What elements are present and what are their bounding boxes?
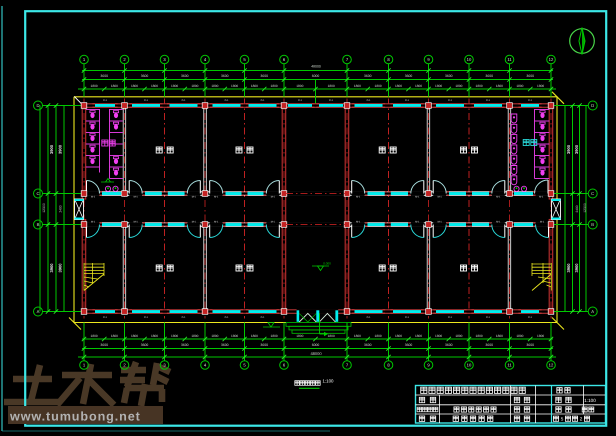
- svg-text:11: 11: [507, 363, 512, 368]
- svg-text:3900: 3900: [58, 263, 63, 273]
- svg-text:1800: 1800: [395, 334, 402, 338]
- svg-text:3900: 3900: [566, 263, 571, 273]
- svg-text:M-1: M-1: [271, 195, 276, 198]
- svg-text:1800: 1800: [354, 84, 361, 88]
- svg-text:1: 1: [83, 57, 86, 62]
- svg-text:3600: 3600: [445, 343, 453, 347]
- svg-text:C: C: [36, 191, 39, 196]
- svg-text:1800: 1800: [395, 84, 402, 88]
- svg-text:11: 11: [507, 57, 512, 62]
- svg-text:1800: 1800: [455, 334, 462, 338]
- svg-text:1800: 1800: [537, 334, 544, 338]
- svg-text:1800: 1800: [455, 84, 462, 88]
- svg-text:M-1: M-1: [496, 195, 501, 198]
- svg-text:C-1: C-1: [144, 316, 149, 319]
- svg-text:3600: 3600: [100, 343, 108, 347]
- svg-text:A: A: [591, 309, 594, 314]
- svg-text:12: 12: [549, 57, 554, 62]
- svg-text:C-1: C-1: [329, 99, 334, 102]
- svg-text:B: B: [37, 222, 40, 227]
- svg-text:B: B: [591, 222, 594, 227]
- svg-text:M-1: M-1: [356, 195, 361, 198]
- svg-text:1800: 1800: [435, 84, 442, 88]
- svg-text:1800: 1800: [151, 84, 158, 88]
- svg-text:M-1: M-1: [415, 220, 420, 223]
- svg-text:1800: 1800: [271, 84, 278, 88]
- svg-text:M-1: M-1: [192, 220, 197, 223]
- svg-text:C-1: C-1: [298, 99, 303, 102]
- svg-text:1800: 1800: [91, 334, 98, 338]
- svg-text:10: 10: [467, 57, 472, 62]
- svg-text:1800: 1800: [375, 334, 382, 338]
- svg-text:12: 12: [549, 363, 554, 368]
- svg-text:C-1: C-1: [405, 316, 410, 319]
- svg-text:M-1: M-1: [214, 220, 219, 223]
- svg-text:1800: 1800: [328, 84, 335, 88]
- svg-text:1800: 1800: [231, 84, 238, 88]
- svg-text:1800: 1800: [211, 84, 218, 88]
- svg-text:1800: 1800: [537, 84, 544, 88]
- svg-text:3600: 3600: [181, 74, 189, 78]
- svg-text:1800: 1800: [296, 334, 303, 338]
- svg-text:C-1: C-1: [405, 99, 410, 102]
- svg-text:3900: 3900: [566, 144, 571, 154]
- svg-text:M-1: M-1: [539, 195, 544, 198]
- svg-text:1800: 1800: [296, 84, 303, 88]
- svg-text:M-1: M-1: [134, 195, 139, 198]
- svg-text:2400: 2400: [575, 205, 579, 212]
- svg-text:C-1: C-1: [448, 316, 453, 319]
- svg-text:3600: 3600: [364, 343, 372, 347]
- svg-text:1800: 1800: [271, 334, 278, 338]
- svg-text:C-1: C-1: [528, 316, 533, 319]
- svg-text:48000: 48000: [310, 351, 322, 356]
- svg-text:M-1: M-1: [496, 220, 501, 223]
- svg-text:10: 10: [467, 363, 472, 368]
- svg-text:C-1: C-1: [225, 99, 230, 102]
- svg-text:M-1: M-1: [91, 195, 96, 198]
- svg-text:3600: 3600: [181, 343, 189, 347]
- svg-text:6: 6: [283, 363, 286, 368]
- svg-text:9: 9: [427, 57, 430, 62]
- svg-text:M-1: M-1: [356, 220, 361, 223]
- svg-text:6000: 6000: [312, 343, 320, 347]
- svg-text:C-1: C-1: [225, 316, 230, 319]
- svg-text:3600: 3600: [526, 343, 534, 347]
- svg-text:6000: 6000: [312, 74, 320, 78]
- svg-text:1800: 1800: [231, 334, 238, 338]
- svg-text:12300: 12300: [583, 203, 587, 213]
- svg-text:12300: 12300: [42, 203, 46, 213]
- svg-text:C-1: C-1: [182, 99, 187, 102]
- svg-text:C-1: C-1: [261, 316, 266, 319]
- svg-text:3600: 3600: [405, 343, 413, 347]
- svg-text:M-1: M-1: [438, 195, 443, 198]
- svg-text:9: 9: [427, 363, 430, 368]
- svg-text:8: 8: [387, 57, 390, 62]
- svg-text:C-1: C-1: [182, 316, 187, 319]
- svg-text:8: 8: [387, 363, 390, 368]
- svg-text:1800: 1800: [151, 334, 158, 338]
- svg-text:3600: 3600: [485, 74, 493, 78]
- svg-text:1800: 1800: [375, 84, 382, 88]
- svg-text:3600: 3600: [141, 74, 149, 78]
- svg-text:D: D: [36, 103, 39, 108]
- svg-text:3600: 3600: [364, 74, 372, 78]
- svg-text:C-1: C-1: [103, 316, 108, 319]
- svg-text:3600: 3600: [100, 74, 108, 78]
- svg-text:1800: 1800: [476, 84, 483, 88]
- svg-text:1800: 1800: [111, 334, 118, 338]
- svg-text:3900: 3900: [49, 263, 54, 273]
- svg-text:3600: 3600: [141, 343, 149, 347]
- svg-text:M-1: M-1: [214, 195, 219, 198]
- svg-text:1800: 1800: [496, 334, 503, 338]
- svg-text:4: 4: [204, 363, 207, 368]
- svg-text:1800: 1800: [251, 334, 258, 338]
- svg-text:C-1: C-1: [261, 99, 266, 102]
- svg-text:M-1: M-1: [540, 220, 545, 223]
- svg-text:3900: 3900: [58, 144, 63, 154]
- svg-text:48000: 48000: [311, 65, 321, 69]
- svg-text:1800: 1800: [251, 84, 258, 88]
- svg-text:1800: 1800: [476, 334, 483, 338]
- svg-text:1800: 1800: [171, 334, 178, 338]
- svg-text:M-1: M-1: [134, 220, 139, 223]
- svg-text:1800: 1800: [415, 84, 422, 88]
- svg-text:5: 5: [243, 363, 246, 368]
- svg-text:1800: 1800: [91, 84, 98, 88]
- svg-text:C-1: C-1: [486, 99, 491, 102]
- svg-text:1:100: 1:100: [323, 379, 335, 384]
- svg-text:1800: 1800: [131, 334, 138, 338]
- svg-text:3600: 3600: [445, 74, 453, 78]
- svg-text:3600: 3600: [260, 343, 268, 347]
- svg-text:1800: 1800: [131, 84, 138, 88]
- svg-text:5: 5: [561, 417, 564, 422]
- svg-text:C-1: C-1: [486, 316, 491, 319]
- svg-text:2: 2: [123, 57, 126, 62]
- svg-text:1800: 1800: [171, 84, 178, 88]
- svg-text:1800: 1800: [415, 334, 422, 338]
- svg-text:C: C: [591, 191, 594, 196]
- svg-text:3600: 3600: [526, 74, 534, 78]
- svg-text:M-1: M-1: [271, 220, 276, 223]
- svg-text:C-1: C-1: [367, 316, 372, 319]
- svg-text:2400: 2400: [59, 205, 63, 212]
- svg-text:3900: 3900: [49, 144, 54, 154]
- svg-text:1800: 1800: [435, 334, 442, 338]
- svg-text:1800: 1800: [516, 84, 523, 88]
- svg-text:5: 5: [243, 57, 246, 62]
- svg-text:D: D: [591, 103, 594, 108]
- svg-text:3600: 3600: [221, 74, 229, 78]
- svg-text:1800: 1800: [191, 84, 198, 88]
- svg-text:C-1: C-1: [144, 99, 149, 102]
- svg-text:1800: 1800: [191, 334, 198, 338]
- svg-text:3600: 3600: [405, 74, 413, 78]
- svg-text:7: 7: [346, 57, 349, 62]
- svg-text:1800: 1800: [354, 334, 361, 338]
- svg-text:C-1: C-1: [367, 99, 372, 102]
- svg-text:M-1: M-1: [415, 195, 420, 198]
- svg-text:1800: 1800: [516, 334, 523, 338]
- svg-text:0.000: 0.000: [323, 262, 331, 266]
- svg-text:2: 2: [580, 417, 583, 422]
- svg-text:M-1: M-1: [91, 220, 96, 223]
- svg-text:6: 6: [283, 57, 286, 62]
- svg-text:1: 1: [83, 363, 86, 368]
- svg-text:3600: 3600: [221, 343, 229, 347]
- svg-text:www.tumubong.net: www.tumubong.net: [9, 410, 141, 424]
- svg-text:C-1: C-1: [448, 99, 453, 102]
- svg-text:7: 7: [346, 363, 349, 368]
- svg-text:1:100: 1:100: [584, 398, 596, 403]
- svg-text:C-1: C-1: [103, 99, 108, 102]
- svg-text:3600: 3600: [485, 343, 493, 347]
- svg-text:A: A: [37, 309, 40, 314]
- svg-text:C-1: C-1: [528, 99, 533, 102]
- svg-text:3900: 3900: [574, 263, 579, 273]
- svg-text:1800: 1800: [211, 334, 218, 338]
- svg-text:3600: 3600: [260, 74, 268, 78]
- svg-text:1800: 1800: [496, 84, 503, 88]
- svg-text:4: 4: [204, 57, 207, 62]
- svg-text:1800: 1800: [111, 84, 118, 88]
- svg-text:3900: 3900: [574, 144, 579, 154]
- svg-text:M-1: M-1: [192, 195, 197, 198]
- svg-text:3: 3: [163, 57, 166, 62]
- svg-text:1800: 1800: [328, 334, 335, 338]
- svg-text:M-1: M-1: [438, 220, 443, 223]
